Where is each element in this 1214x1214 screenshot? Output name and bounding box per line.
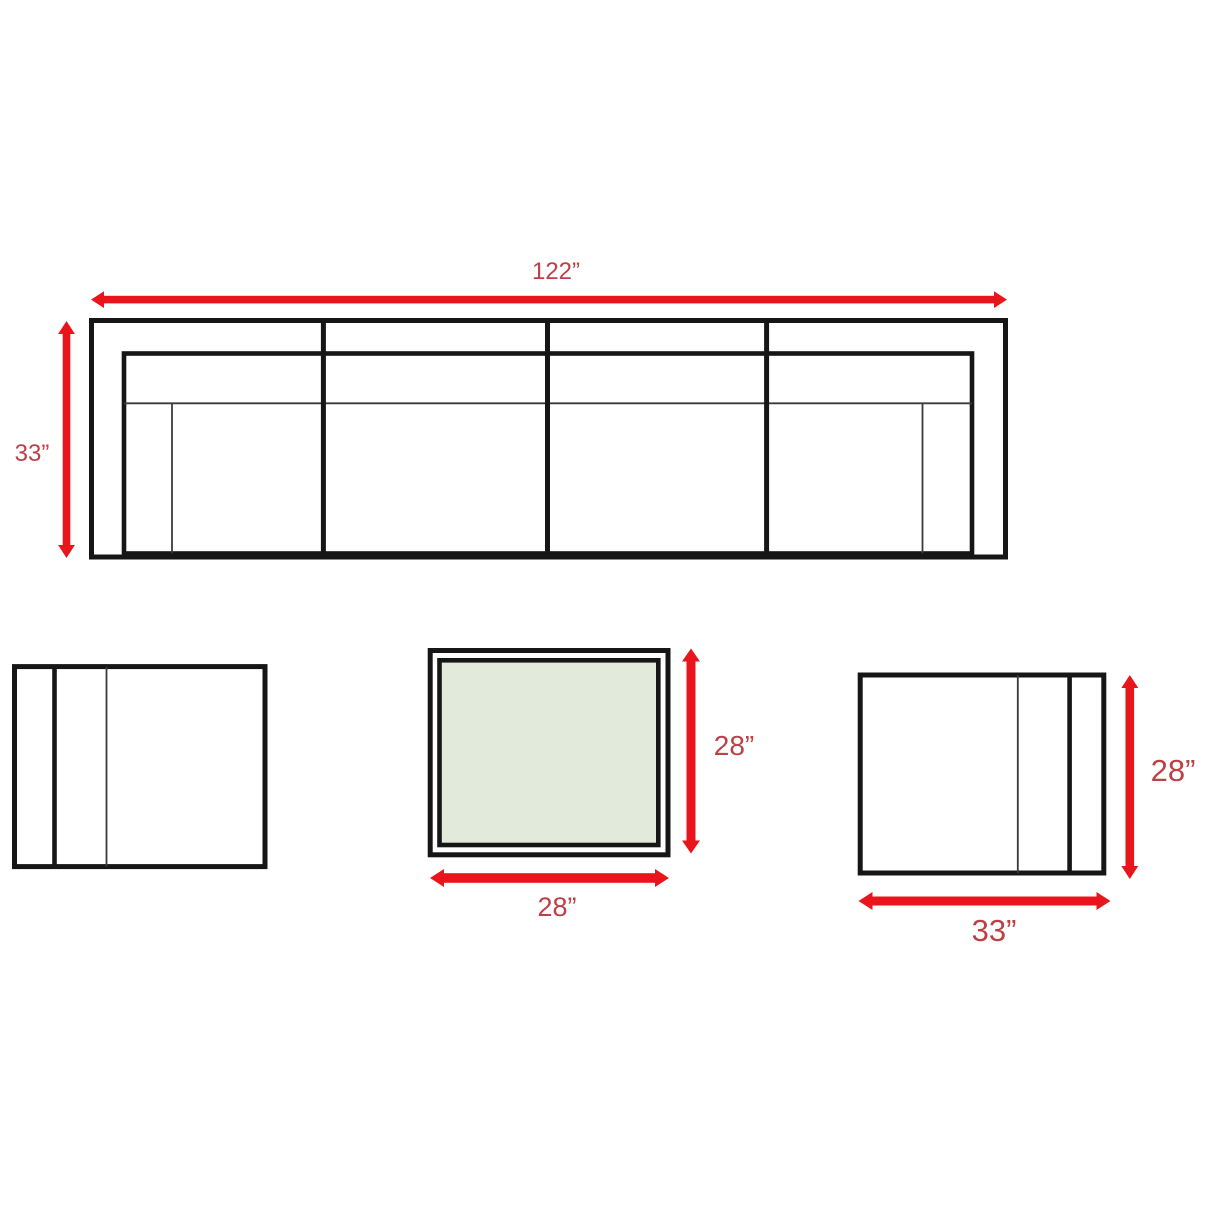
svg-text:122”: 122” xyxy=(532,258,580,285)
svg-text:28”: 28” xyxy=(714,730,754,761)
svg-text:28”: 28” xyxy=(1151,753,1196,788)
svg-text:33”: 33” xyxy=(972,913,1017,948)
svg-text:28”: 28” xyxy=(537,892,576,922)
svg-text:33”: 33” xyxy=(15,440,50,467)
